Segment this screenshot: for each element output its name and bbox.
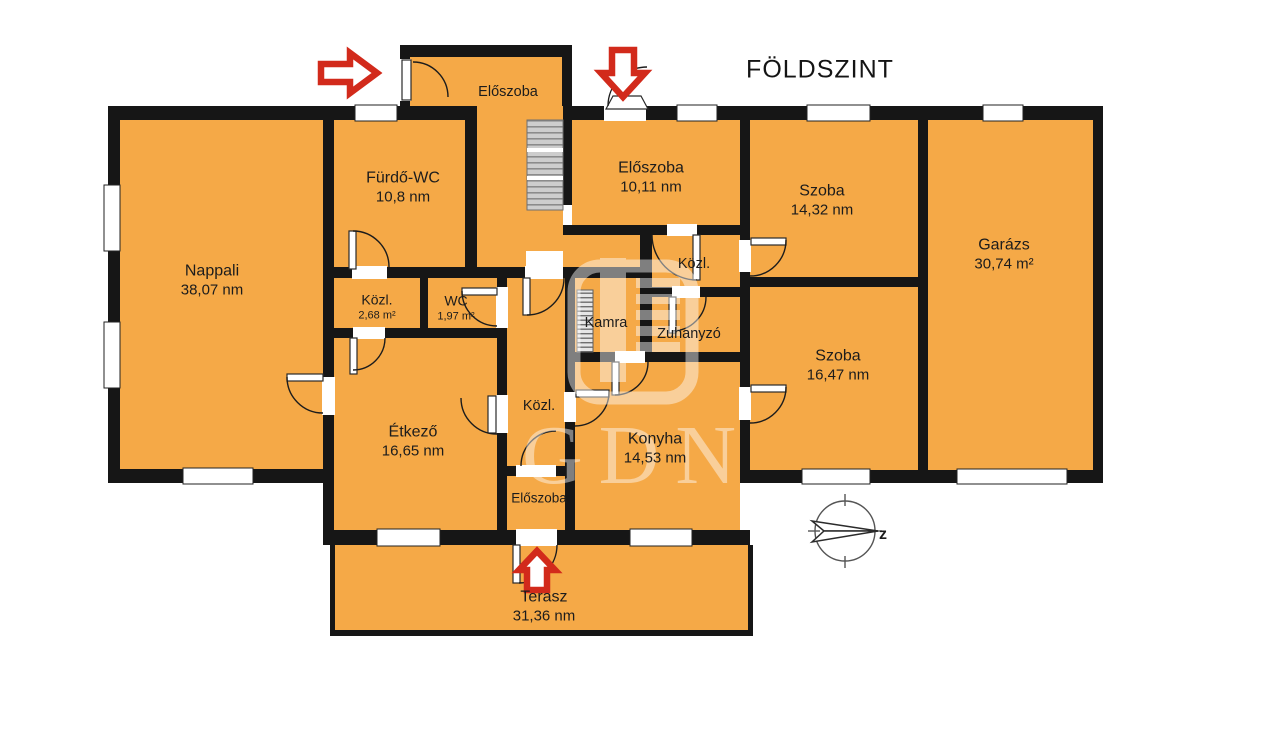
floorplan-drawing: GDN z: [0, 0, 1280, 731]
room-label-kozl-1: Közl. 2,68 m²: [358, 291, 395, 322]
page-title: FÖLDSZINT: [746, 56, 894, 85]
room-label-garazs: Garázs 30,74 m²: [974, 236, 1033, 275]
room-label-konyha: Konyha 14,53 nm: [624, 430, 687, 469]
room-label-furdo-wc: Fürdő-WC 10,8 nm: [366, 169, 440, 208]
compass-needle: [812, 521, 878, 531]
room-label-szoba-1: Szoba 14,32 nm: [791, 182, 854, 221]
room-label-wc: WC 1,97 m²: [437, 292, 474, 323]
room-label-eloszoba-main: Előszoba 10,11 nm: [618, 159, 684, 198]
entrance-arrow-down-icon: [601, 50, 645, 97]
room-label-eloszoba-top: Előszoba: [478, 83, 538, 101]
compass: z: [808, 494, 887, 568]
room-label-nappali: Nappali 38,07 nm: [181, 262, 244, 301]
room-label-szoba-2: Szoba 16,47 nm: [807, 347, 870, 386]
floorplan-page: GDN z FÖLDSZINT Nappali 38,07 nm Fürdő-W…: [0, 0, 1280, 731]
compass-label: z: [879, 526, 887, 543]
room-label-etkezo: Étkező 16,65 nm: [382, 423, 445, 462]
entrance-arrow-right-icon: [321, 53, 377, 93]
room-label-kozl-2: Közl.: [678, 255, 710, 273]
room-label-kamra: Kamra: [585, 314, 628, 332]
room-label-terasz: Terasz 31,36 nm: [513, 588, 576, 627]
room-label-kozl-3: Közl.: [523, 397, 555, 415]
staircase: [527, 120, 563, 210]
room-label-eloszoba-small: Előszoba: [511, 491, 567, 508]
room-label-zuhanyzo: Zuhanyzó: [657, 325, 721, 343]
